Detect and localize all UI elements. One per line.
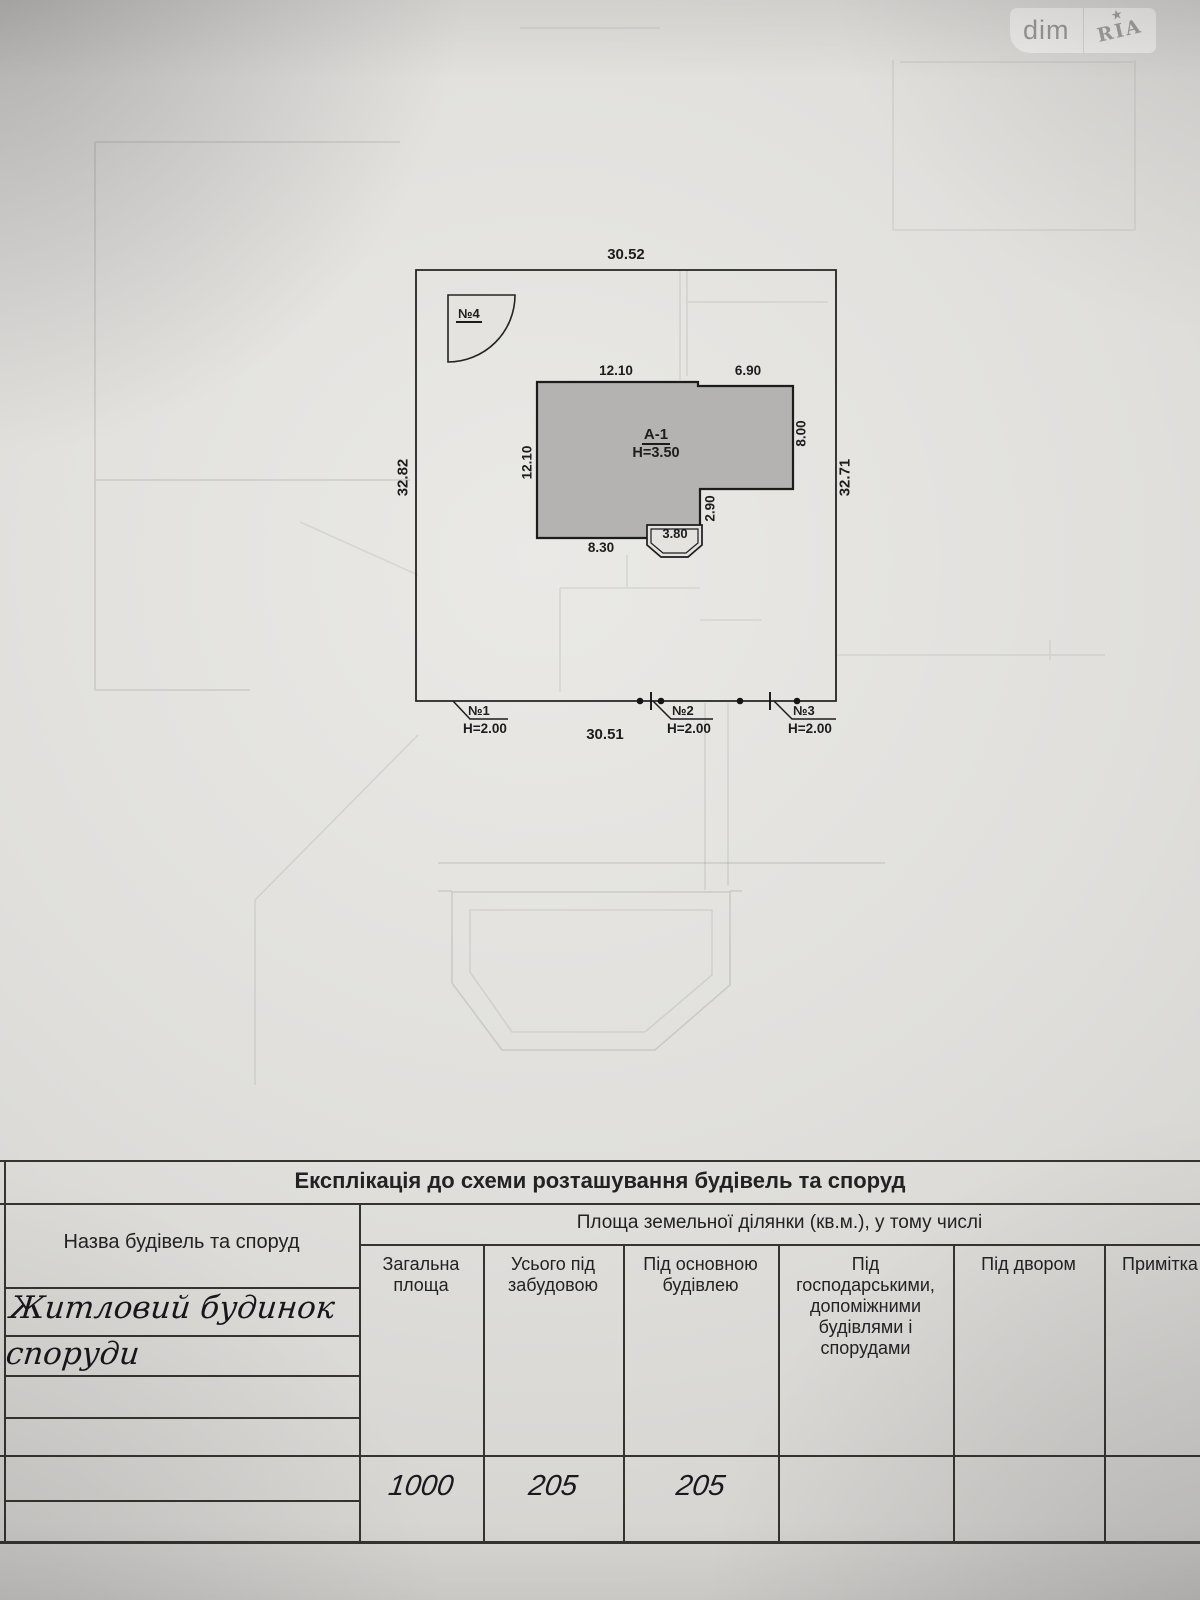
plot-dim-left: 32.82: [395, 438, 412, 518]
table-line: [1104, 1244, 1106, 1544]
column-header-total: Загальна площа: [362, 1254, 480, 1296]
table-line: [4, 1500, 359, 1502]
table-line: [953, 1244, 955, 1544]
dim-logo-text: dim: [1010, 15, 1083, 46]
building-dim-bay: 3.80: [649, 526, 701, 541]
entry-main-building-area: 205: [621, 1470, 781, 1503]
structure-1-number: №1: [468, 703, 490, 718]
structure-3-number: №3: [793, 703, 815, 718]
entry-total-area: 1000: [357, 1470, 486, 1503]
scanned-document-photo: 30.52 32.82 32.71 30.51 №4 12.10 6.90 12…: [0, 0, 1200, 1600]
leader-lines: [453, 701, 836, 719]
plan-linework: [0, 0, 1200, 1600]
entry-built-area: 205: [481, 1470, 626, 1503]
plot-dim-bottom: 30.51: [565, 726, 645, 743]
structure-4-number: №4: [456, 306, 482, 323]
entry-name-line2: споруди: [4, 1336, 141, 1372]
building-dim-inner-right: 2.90: [703, 471, 718, 547]
table-line: [0, 1160, 1200, 1162]
table-title: Експлікація до схеми розташування будіве…: [0, 1168, 1200, 1194]
column-header-built: Усього під забудовою: [487, 1254, 619, 1296]
structure-2-height: Н=2.00: [667, 721, 711, 736]
building-dim-top-left: 12.10: [578, 363, 654, 378]
table-line: [4, 1417, 359, 1419]
building-dim-right: 8.00: [794, 396, 809, 472]
structure-1-height: Н=2.00: [463, 721, 507, 736]
entry-name-line1: Житловий будинок: [8, 1290, 336, 1326]
structure-4-label: №4: [456, 306, 482, 321]
dim-ria-watermark: dim ★ RIA: [1010, 8, 1156, 53]
structure-3-height: Н=2.00: [788, 721, 832, 736]
building-dim-left: 12.10: [520, 425, 535, 501]
building-height: Н=3.50: [612, 445, 700, 461]
ghost-bleedthrough: [95, 28, 1135, 1085]
table-line: [0, 1203, 1200, 1205]
structure-2-number: №2: [672, 703, 694, 718]
building-label-wrap: А-1: [616, 426, 696, 443]
table-line: [4, 1375, 359, 1377]
table-line: [778, 1244, 780, 1544]
building-dim-bottom: 8.30: [563, 540, 639, 555]
column-header-main: Під основною будівлею: [627, 1254, 774, 1296]
table-line: [0, 1455, 1200, 1457]
building-label: А-1: [642, 426, 670, 445]
area-group-header: Площа земельної ділянки (кв.м.), у тому …: [359, 1212, 1200, 1234]
table-line: [4, 1287, 359, 1289]
plot-dim-top: 30.52: [586, 246, 666, 263]
name-column-header: Назва будівель та споруд: [4, 1231, 359, 1254]
table-line: [0, 1541, 1200, 1544]
column-header-notes: Примітка: [1104, 1254, 1200, 1275]
column-header-yard: Під двором: [957, 1254, 1100, 1275]
column-header-aux: Під господарськими, допоміжними будівлям…: [782, 1254, 949, 1359]
building-dim-top-right: 6.90: [710, 363, 786, 378]
ria-logo: ★ RIA: [1084, 20, 1157, 42]
plot-dim-right: 32.71: [837, 438, 854, 518]
ria-logo-text: RIA: [1095, 15, 1144, 47]
